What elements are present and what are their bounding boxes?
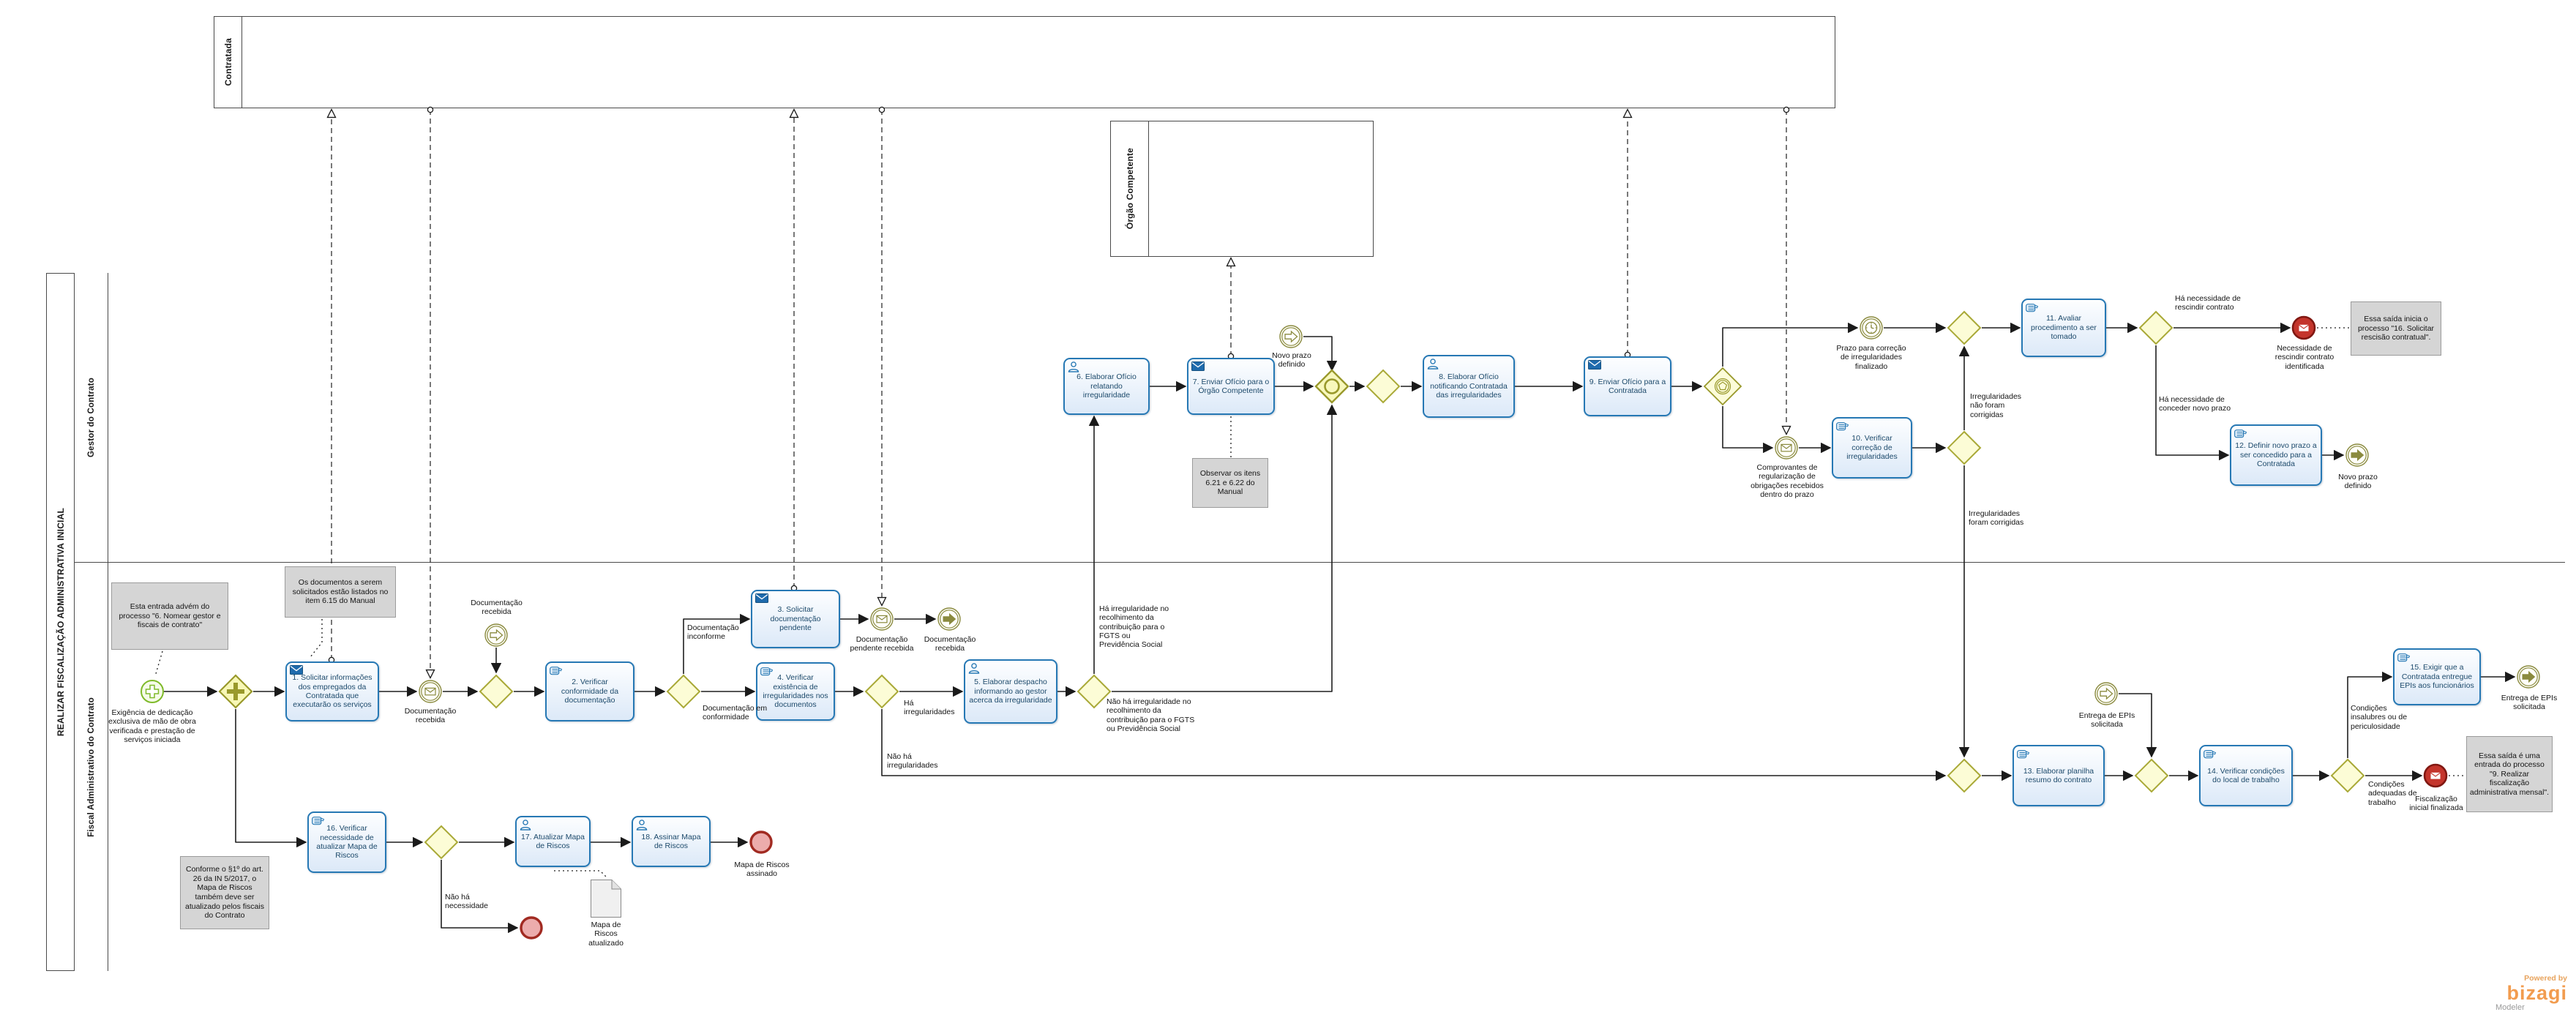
pool-contratada: Contratada	[214, 16, 1835, 108]
flow-label: Documentação inconforme	[687, 623, 753, 642]
link-throw-entrega-epis[interactable]	[2516, 664, 2541, 689]
lane-label: Gestor do Contrato	[87, 378, 96, 457]
message-catch-documentacao-recebida[interactable]	[418, 679, 443, 704]
task-5-elaborar-despacho[interactable]: 5. Elaborar despacho informando ao gesto…	[964, 659, 1057, 724]
lane-0-band: Gestor do Contrato	[75, 273, 108, 562]
person-icon	[520, 820, 531, 831]
task-label: 17. Atualizar Mapa de Riscos	[520, 833, 585, 851]
gateway-merge-planilha[interactable]	[1947, 758, 1982, 793]
annotation-entrada-processo-6[interactable]: Esta entrada advém do processo "6. Nomea…	[111, 582, 228, 650]
inclusive-gateway[interactable]	[1314, 369, 1349, 404]
envelope-icon	[1191, 361, 1205, 371]
task-16-verificar-mapa-riscos[interactable]: 16. Verificar necessidade de atualizar M…	[307, 811, 386, 873]
task-label: 8. Elaborar Ofício notificando Contratad…	[1428, 372, 1510, 400]
pool-orgao: Órgão Competente	[1110, 121, 1374, 257]
task-9-enviar-oficio-contratada[interactable]: 9. Enviar Ofício para a Contratada	[1584, 356, 1671, 416]
pool-orgao-band: Órgão Competente	[1111, 121, 1149, 256]
pool-contratada-band: Contratada	[214, 17, 242, 108]
flow-label: Documentação recebida	[397, 707, 464, 725]
task-label: 2. Verificar conformidade da documentaçã…	[550, 678, 629, 705]
link-catch-novo-prazo[interactable]	[1278, 324, 1303, 349]
task-label: 5. Elaborar despacho informando ao gesto…	[969, 678, 1052, 705]
task-3-solicitar-documentacao[interactable]: 3. Solicitar documentação pendente	[751, 590, 840, 648]
hand-icon	[760, 666, 774, 676]
task-17-atualizar-mapa[interactable]: 17. Atualizar Mapa de Riscos	[515, 816, 591, 867]
task-label: 10. Verificar correção de irregularidade…	[1837, 434, 1907, 461]
gateway-ha-irregularidades[interactable]	[864, 674, 899, 709]
flow-label: Novo prazo definido	[1260, 351, 1323, 370]
task-label: 7. Enviar Ofício para o Órgão Competente	[1192, 378, 1270, 396]
gateway-necessidade-mapa[interactable]	[424, 825, 459, 860]
event-based-gateway[interactable]	[1703, 367, 1742, 406]
flow-label: Há necessidade de conceder novo prazo	[2159, 395, 2232, 413]
gateway-condicoes[interactable]	[2330, 758, 2365, 793]
annotation-saida-processo-9[interactable]: Essa saída é uma entrada do processo "9.…	[2466, 736, 2553, 812]
flow-label: Há necessidade de rescindir contrato	[2175, 294, 2261, 312]
end-message-rescindir[interactable]	[2291, 315, 2316, 340]
task-8-elaborar-oficio-notificando[interactable]: 8. Elaborar Ofício notificando Contratad…	[1423, 355, 1515, 418]
flow-label: Condições insalubres ou de periculosidad…	[2351, 704, 2422, 731]
timer-prazo-correcao[interactable]	[1859, 315, 1884, 340]
task-label: 11. Avaliar procedimento a ser tomado	[2026, 314, 2101, 341]
task-12-definir-novo-prazo[interactable]: 12. Definir novo prazo a ser concedido p…	[2230, 424, 2322, 486]
task-18-assinar-mapa[interactable]: 18. Assinar Mapa de Riscos	[632, 816, 711, 867]
message-catch-comprovantes[interactable]	[1774, 435, 1799, 460]
task-15-exigir-epis[interactable]: 15. Exigir que a Contratada entregue EPI…	[2393, 648, 2481, 705]
annotation-observar-itens[interactable]: Observar os itens 6.21 e 6.22 do Manual	[1192, 458, 1268, 508]
annotation-documentos-item-615[interactable]: Os documentos a serem solicitados estão …	[285, 566, 396, 618]
task-label: 1. Solicitar informações dos empregados …	[291, 673, 374, 710]
person-icon	[968, 663, 980, 674]
flow-label: Comprovantes de regularização de obrigaç…	[1748, 463, 1827, 499]
task-label: 14. Verificar condições do local de trab…	[2204, 767, 2288, 785]
flow-label: Mapa de Riscos assinado	[733, 861, 790, 879]
start-event[interactable]	[140, 679, 165, 704]
flow-label: Documentação em conformidade	[703, 704, 770, 722]
lane-label: Fiscal Administrativo do Contrato	[87, 697, 96, 837]
task-label: 6. Elaborar Ofício relatando irregularid…	[1068, 372, 1145, 400]
task-2-verificar-conformidade[interactable]: 2. Verificar conformidade da documentaçã…	[545, 661, 634, 721]
person-icon	[1068, 361, 1079, 372]
end-mapa-assinado[interactable]	[749, 830, 774, 855]
message-catch-documentacao-pendente[interactable]	[869, 607, 894, 631]
flow-label: Necessidade de rescindir contrato identi…	[2264, 344, 2345, 371]
envelope-icon	[1588, 360, 1601, 370]
task-label: 15. Exigir que a Contratada entregue EPI…	[2398, 663, 2476, 690]
annotation-text: Essa saída inicia o processo "16. Solici…	[2354, 315, 2438, 342]
gateway-conformidade[interactable]	[666, 674, 701, 709]
envelope-icon	[290, 665, 303, 675]
task-label: 4. Verificar existência de irregularidad…	[761, 673, 830, 710]
pool-main-band: REALIZAR FISCALIZAÇÃO ADMINISTRATIVA INI…	[47, 274, 75, 970]
annotation-text: Conforme o §1º do art. 26 da IN 5/2017, …	[183, 865, 266, 921]
flow-label: Não há necessidade	[445, 893, 505, 911]
flow-label: Não há irregularidades	[887, 752, 951, 771]
pool-contratada-label: Contratada	[223, 38, 233, 86]
pool-main-label: REALIZAR FISCALIZAÇÃO ADMINISTRATIVA INI…	[56, 508, 66, 736]
task-6-elaborar-oficio[interactable]: 6. Elaborar Ofício relatando irregularid…	[1063, 358, 1150, 415]
flow-label: Irregularidades foram corrigidas	[1969, 509, 2037, 528]
lane-0: Gestor do Contrato	[74, 273, 2565, 562]
link-catch-documentacao-recebida[interactable]	[484, 623, 509, 648]
powered-by-label: Powered by	[2487, 975, 2567, 983]
flow-label: Entrega de EPIs solicitada	[2495, 694, 2563, 712]
link-throw-documentacao-recebida[interactable]	[937, 607, 962, 631]
link-catch-entrega-epis[interactable]	[2094, 681, 2119, 706]
task-label: 18. Assinar Mapa de Riscos	[637, 833, 705, 851]
flow-label: Documentação recebida	[462, 599, 531, 617]
flow-label: Documentação recebida	[918, 635, 982, 653]
flow-label: Novo prazo definido	[2326, 473, 2390, 491]
flow-label: Fiscalização inicial finalizada	[2405, 795, 2468, 813]
bizagi-logo: bizagi	[2487, 983, 2567, 1003]
hand-icon	[550, 665, 563, 675]
gateway-merge-documentacao[interactable]	[479, 674, 514, 709]
task-label: 9. Enviar Ofício para a Contratada	[1589, 378, 1666, 396]
annotation-text: Essa saída é uma entrada do processo "9.…	[2469, 751, 2550, 798]
parallel-gateway[interactable]	[218, 674, 253, 709]
flow-label: Documentação pendente recebida	[847, 635, 917, 653]
envelope-icon	[755, 593, 768, 603]
gateway-merge-avaliar[interactable]	[1947, 310, 1982, 345]
flow-label: Há irregularidades	[904, 699, 964, 717]
flow-label: Mapa de Riscos atualizado	[580, 921, 632, 948]
annotation-text: Esta entrada advém do processo "6. Nomea…	[114, 602, 225, 630]
task-label: 13. Elaborar planilha resumo do contrato	[2018, 767, 2100, 785]
gateway-procedimento[interactable]	[2138, 310, 2173, 345]
hand-icon	[2234, 428, 2247, 438]
task-1-solicitar-informacoes[interactable]: 1. Solicitar informações dos empregados …	[285, 661, 379, 721]
annotation-text: Os documentos a serem solicitados estão …	[288, 578, 393, 606]
flow-label: Irregularidades não foram corrigidas	[1970, 392, 2036, 419]
hand-icon	[1836, 421, 1849, 431]
gateway-pre-oficio[interactable]	[1366, 369, 1401, 404]
lane-1-band: Fiscal Administrativo do Contrato	[75, 563, 108, 971]
flow-label: Exigência de dedicação exclusiva de mão …	[96, 708, 209, 744]
annotation-in-5-2017[interactable]: Conforme o §1º do art. 26 da IN 5/2017, …	[180, 856, 269, 929]
task-label: 16. Verificar necessidade de atualizar M…	[312, 824, 381, 861]
person-icon	[1427, 359, 1439, 370]
hand-icon	[2017, 749, 2030, 759]
flow-label: Prazo para correção de irregularidades f…	[1835, 344, 1907, 371]
task-10-verificar-correcao[interactable]: 10. Verificar correção de irregularidade…	[1832, 417, 1912, 479]
data-object-mapa-riscos[interactable]	[591, 880, 621, 918]
bizagi-branding: Powered by bizagi Modeler	[2487, 975, 2567, 1012]
hand-icon	[2026, 302, 2039, 312]
bpmn-diagram-canvas: Powered by bizagi Modeler ContratadaÓrgã…	[0, 0, 2576, 1031]
flow-label: Não há irregularidade no recolhimento da…	[1107, 697, 1200, 733]
hand-icon	[312, 815, 325, 825]
annotation-saida-processo-16[interactable]: Essa saída inicia o processo "16. Solici…	[2351, 301, 2441, 356]
modeler-label: Modeler	[2495, 1004, 2567, 1012]
gateway-correcao[interactable]	[1947, 430, 1982, 465]
task-label: 3. Solicitar documentação pendente	[756, 605, 835, 632]
task-14-verificar-condicoes[interactable]: 14. Verificar condições do local de trab…	[2199, 745, 2293, 806]
gateway-merge-epis[interactable]	[2134, 758, 2169, 793]
hand-icon	[2204, 749, 2217, 759]
annotation-text: Observar os itens 6.21 e 6.22 do Manual	[1195, 469, 1265, 497]
task-13-elaborar-planilha[interactable]: 13. Elaborar planilha resumo do contrato	[2012, 745, 2105, 806]
person-icon	[636, 820, 648, 831]
link-throw-novo-prazo[interactable]	[2345, 443, 2370, 468]
task-label: 12. Definir novo prazo a ser concedido p…	[2235, 441, 2317, 468]
pool-orgao-label: Órgão Competente	[1125, 148, 1135, 229]
end-nao-ha-necessidade[interactable]	[519, 915, 544, 940]
flow-label: Há irregularidade no recolhimento da con…	[1099, 604, 1172, 649]
hand-icon	[2397, 652, 2411, 662]
flow-label: Entrega de EPIs solicitada	[2074, 711, 2140, 730]
task-11-avaliar-procedimento[interactable]: 11. Avaliar procedimento a ser tomado	[2021, 299, 2106, 357]
